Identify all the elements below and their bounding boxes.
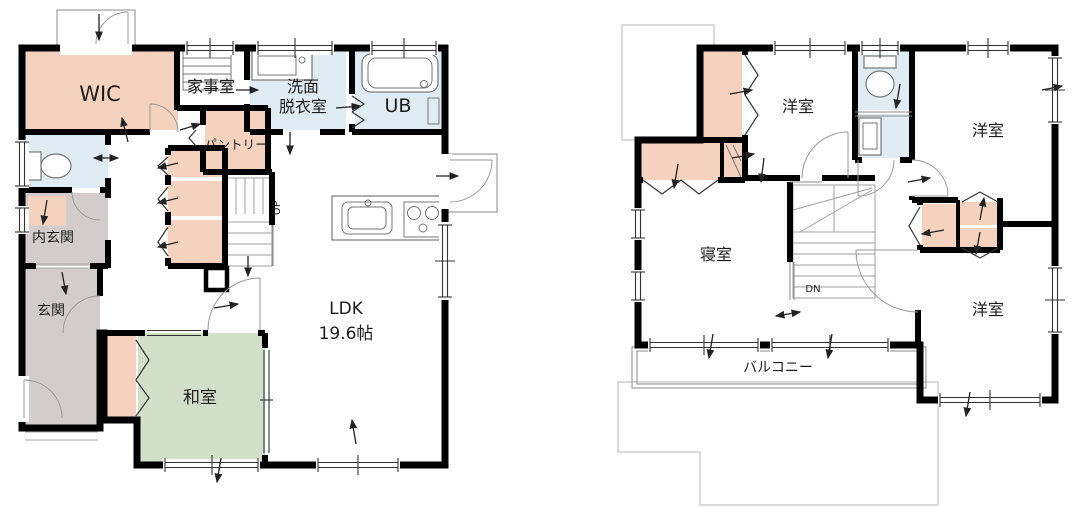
floor2-plan: 洋室 洋室 洋室 寝室 DN バルコニー	[618, 25, 1065, 505]
floor1-plan: WIC 家事室 洗面 脱衣室 UB パントリー 内玄関 玄関 和室 LDK 19…	[15, 10, 497, 482]
label-utility: 家事室	[187, 77, 235, 96]
tatami-closet	[104, 335, 136, 418]
toilet-2f	[864, 56, 896, 97]
toilet-1f	[28, 152, 71, 180]
label-bath: UB	[385, 95, 412, 117]
stairs-nook	[206, 268, 227, 290]
label-ldk-2: 19.6帖	[319, 324, 374, 344]
label-bedroom-bottom: 洋室	[972, 300, 1004, 319]
label-stairs-up: UP	[270, 200, 283, 215]
vanity-counter	[252, 51, 312, 80]
label-stairs-dn: DN	[805, 284, 820, 295]
label-washroom-1: 洗面	[287, 77, 319, 96]
closet-2f-row	[641, 143, 722, 180]
label-inner-entry: 内玄関	[32, 229, 74, 246]
roof-hatch-bottom	[618, 382, 938, 505]
closet-2f-b	[960, 202, 1000, 225]
floorplan-svg: WIC 家事室 洗面 脱衣室 UB パントリー 内玄関 玄関 和室 LDK 19…	[0, 0, 1080, 507]
closet-2f-c	[960, 228, 1000, 248]
floorplan-canvas: WIC 家事室 洗面 脱衣室 UB パントリー 内玄関 玄関 和室 LDK 19…	[0, 0, 1080, 507]
closet-2f-vertical	[702, 51, 742, 139]
closet-2f-a	[922, 204, 957, 247]
label-wic: WIC	[79, 82, 121, 106]
label-ldk-1: LDK	[329, 299, 364, 319]
stairs-2f	[793, 185, 875, 298]
label-washroom-2: 脱衣室	[279, 97, 327, 116]
label-balcony: バルコニー	[743, 360, 813, 376]
label-master: 寝室	[700, 245, 732, 264]
basin-2f	[859, 118, 881, 155]
service-porch-right	[448, 154, 497, 212]
label-tatami: 和室	[183, 388, 217, 408]
kitchen-island	[332, 196, 448, 240]
label-bedroom-right: 洋室	[972, 121, 1004, 140]
label-bedroom-top: 洋室	[782, 97, 814, 116]
label-entry: 玄関	[37, 302, 65, 319]
label-pantry: パントリー	[204, 137, 267, 152]
room-entry	[25, 268, 100, 426]
